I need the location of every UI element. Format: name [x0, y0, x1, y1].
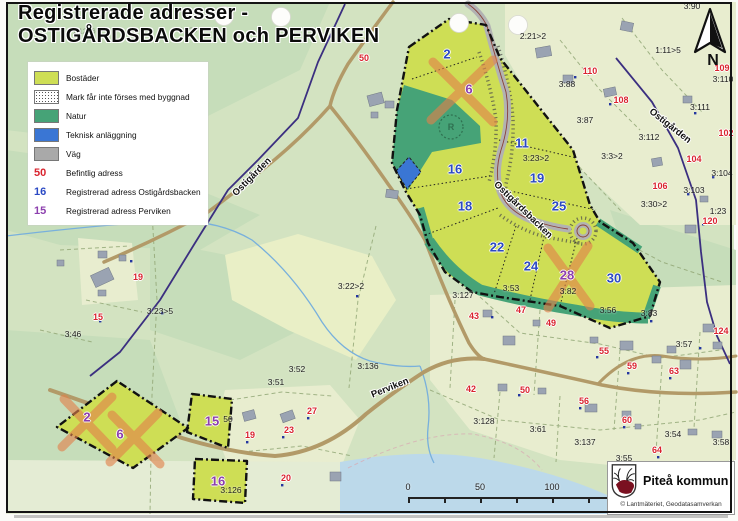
- scale-tick: [408, 497, 410, 503]
- legend-item: Natur: [34, 106, 204, 125]
- north-arrow-label: N: [707, 52, 719, 70]
- legend-item: Mark får inte förses med byggnad: [34, 87, 204, 106]
- scanned-map-page: 1:12>63:129 2:21>23:901:11>53:1103:1113:…: [0, 0, 738, 521]
- legend-symbol: 15: [34, 205, 66, 217]
- legend-item-label: Registrerad adress Perviken: [66, 206, 171, 216]
- legend-swatch-vag-icon: [34, 147, 66, 161]
- scale-tick: [552, 497, 554, 503]
- scale-tick: [588, 497, 590, 503]
- legend-item-label: Natur: [66, 111, 86, 121]
- paper-shadow: [14, 515, 728, 518]
- legend-item-label: Väg: [66, 149, 81, 159]
- scale-tick: [480, 497, 482, 503]
- scale-tick: [516, 497, 518, 503]
- scale-tick: [444, 497, 446, 503]
- legend-item-label: Mark får inte förses med byggnad: [66, 92, 190, 102]
- legend-item-label: Bostäder: [66, 73, 99, 83]
- map-title-line2: OSTIGÅRDSBACKEN och PERVIKEN: [18, 25, 379, 48]
- scale-label: 100: [544, 482, 559, 492]
- map-title: Registrerade adresser - OSTIGÅRDSBACKEN …: [18, 2, 379, 48]
- legend-item-label: Befintlig adress: [66, 168, 123, 178]
- legend-item: 50Befintlig adress: [34, 163, 204, 182]
- scale-label: 0: [405, 482, 410, 492]
- map-title-line1: Registrerade adresser -: [18, 2, 379, 25]
- legend-item: Teknisk anläggning: [34, 125, 204, 144]
- municipality-name: Piteå kommun: [643, 474, 728, 488]
- legend-item-label: Registrerad adress Ostigårdsbacken: [66, 187, 201, 197]
- scale-label: 50: [475, 482, 485, 492]
- legend-item: 15Registrerad adress Perviken: [34, 201, 204, 220]
- legend-item: 16Registrerad adress Ostigårdsbacken: [34, 182, 204, 201]
- legend-item: Väg: [34, 144, 204, 163]
- attribution-box: Piteå kommun © Lantmäteriet, Geodatasamv…: [607, 461, 735, 515]
- legend: BostäderMark får inte förses med byggnad…: [28, 62, 208, 225]
- copyright-text: © Lantmäteriet, Geodatasamverkan: [608, 501, 734, 508]
- legend-symbol: 16: [34, 186, 66, 198]
- legend-swatch-bostader-icon: [34, 71, 66, 85]
- legend-swatch-natur-icon: [34, 109, 66, 123]
- legend-swatch-prickmark-icon: [34, 90, 66, 104]
- legend-symbol: 50: [34, 167, 66, 179]
- legend-item-label: Teknisk anläggning: [66, 130, 137, 140]
- pitea-kommun-crest-icon: [608, 463, 640, 499]
- legend-item: Bostäder: [34, 68, 204, 87]
- legend-swatch-teknisk-icon: [34, 128, 66, 142]
